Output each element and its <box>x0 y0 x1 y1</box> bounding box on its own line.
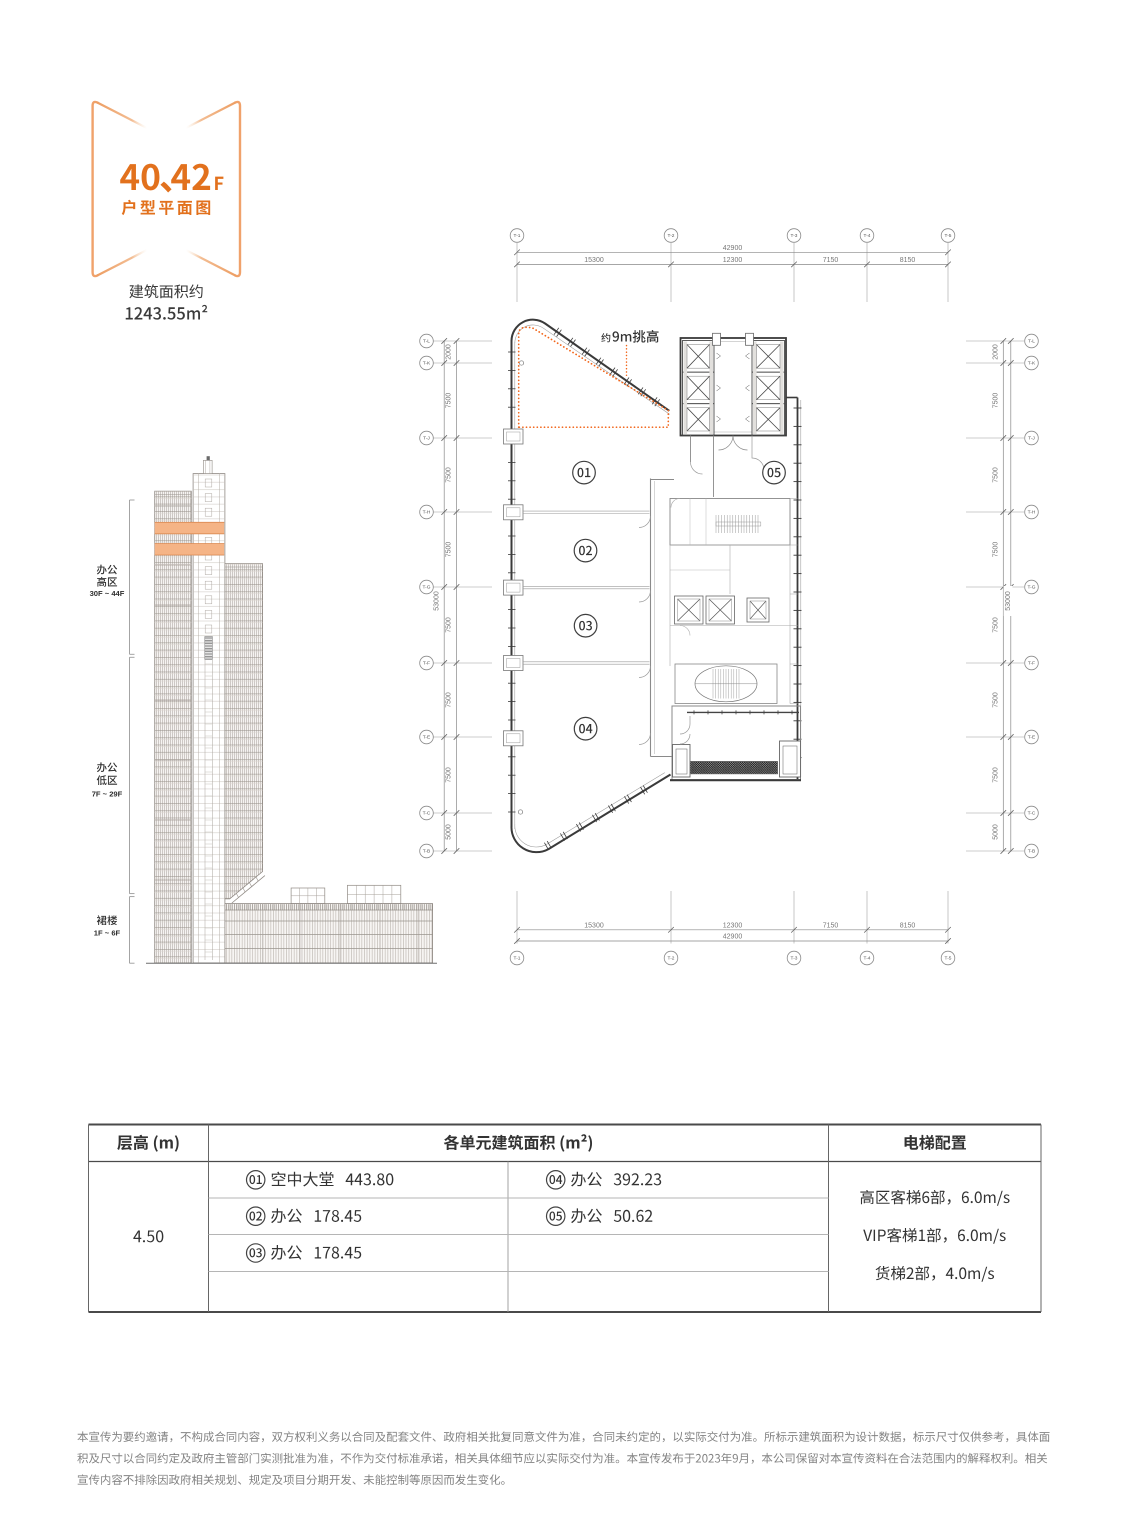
svg-text:T-J: T-J <box>423 436 430 442</box>
svg-text:T-E: T-E <box>1028 735 1035 741</box>
svg-text:53000: 53000 <box>434 591 441 611</box>
svg-text:7500: 7500 <box>446 542 453 558</box>
svg-text:7500: 7500 <box>446 467 453 483</box>
svg-text:T-J: T-J <box>1028 436 1035 442</box>
svg-text:T-F: T-F <box>423 661 430 667</box>
svg-text:7500: 7500 <box>993 393 1000 409</box>
svg-text:42900: 42900 <box>723 934 743 941</box>
svg-text:T-H: T-H <box>1028 510 1036 516</box>
svg-text:T-F: T-F <box>1028 661 1035 667</box>
svg-text:T-G: T-G <box>423 585 431 591</box>
svg-text:T-K: T-K <box>423 361 431 367</box>
svg-text:T-4: T-4 <box>864 956 871 962</box>
svg-text:2000: 2000 <box>993 344 1000 360</box>
svg-text:5000: 5000 <box>993 824 1000 840</box>
svg-text:T-2: T-2 <box>668 233 675 239</box>
svg-text:2000: 2000 <box>446 344 453 360</box>
svg-text:1F ~ 6F: 1F ~ 6F <box>94 928 121 937</box>
svg-text:T-3: T-3 <box>791 956 798 962</box>
svg-text:T-C: T-C <box>423 811 431 817</box>
svg-text:T-1: T-1 <box>514 233 521 239</box>
svg-text:T-3: T-3 <box>791 233 798 239</box>
svg-text:T-B: T-B <box>423 849 430 855</box>
svg-text:12300: 12300 <box>723 922 743 929</box>
svg-text:T-H: T-H <box>423 510 431 516</box>
svg-text:7500: 7500 <box>446 767 453 783</box>
svg-text:T-E: T-E <box>423 735 430 741</box>
svg-text:7500: 7500 <box>993 767 1000 783</box>
svg-text:7500: 7500 <box>446 692 453 708</box>
svg-text:15300: 15300 <box>584 922 604 929</box>
svg-text:53000: 53000 <box>1005 591 1012 611</box>
svg-text:42900: 42900 <box>723 245 743 252</box>
svg-text:7500: 7500 <box>446 393 453 409</box>
svg-text:T-L: T-L <box>423 339 430 345</box>
svg-text:T-4: T-4 <box>864 233 871 239</box>
svg-text:T-K: T-K <box>1028 361 1036 367</box>
svg-text:T-5: T-5 <box>945 233 952 239</box>
svg-text:T-C: T-C <box>1028 811 1036 817</box>
svg-text:T-B: T-B <box>1028 849 1035 855</box>
svg-text:7150: 7150 <box>823 922 839 929</box>
svg-text:7500: 7500 <box>993 692 1000 708</box>
svg-text:7500: 7500 <box>446 617 453 633</box>
svg-text:5000: 5000 <box>446 824 453 840</box>
svg-text:12300: 12300 <box>723 257 743 264</box>
svg-text:30F ~ 44F: 30F ~ 44F <box>90 589 125 598</box>
svg-text:7F ~ 29F: 7F ~ 29F <box>92 789 123 798</box>
svg-text:7500: 7500 <box>993 617 1000 633</box>
svg-text:7500: 7500 <box>993 542 1000 558</box>
svg-text:T-1: T-1 <box>514 956 521 962</box>
svg-text:T-2: T-2 <box>668 956 675 962</box>
svg-text:T-G: T-G <box>1028 585 1036 591</box>
svg-text:15300: 15300 <box>584 257 604 264</box>
svg-text:8150: 8150 <box>900 922 916 929</box>
svg-text:7500: 7500 <box>993 467 1000 483</box>
svg-text:T-L: T-L <box>1028 339 1035 345</box>
svg-text:T-5: T-5 <box>945 956 952 962</box>
svg-text:8150: 8150 <box>900 257 916 264</box>
svg-text:7150: 7150 <box>823 257 839 264</box>
